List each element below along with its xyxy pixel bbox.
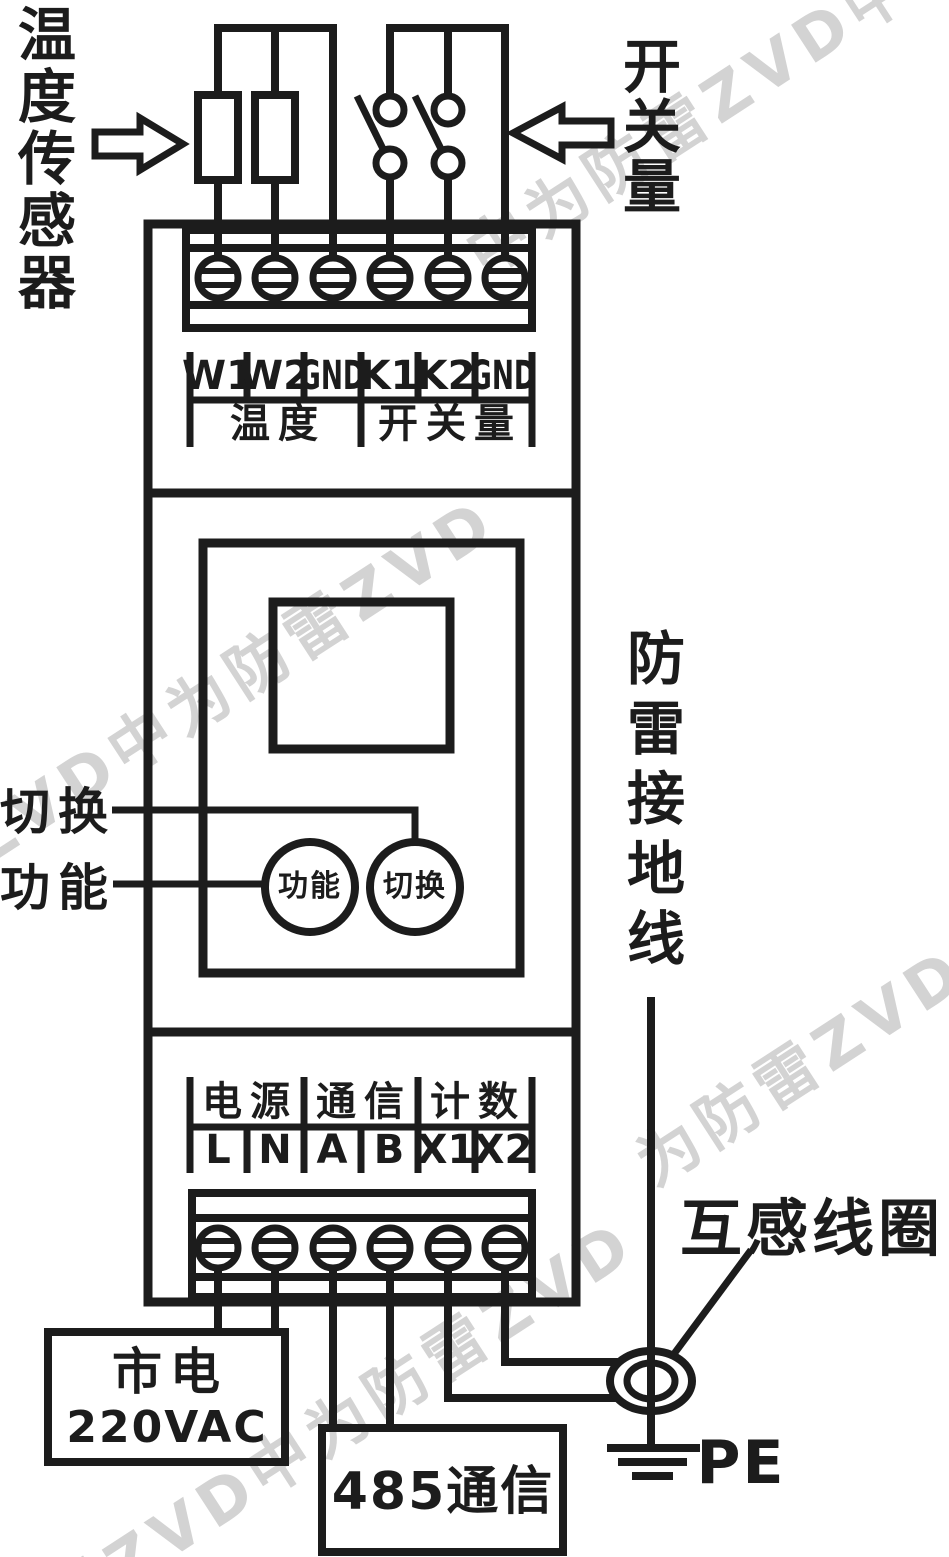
group-label-temperature: 温度	[230, 404, 326, 444]
earth-ground-icon	[607, 1448, 700, 1476]
screw-terminal	[255, 258, 295, 298]
arrow-right-icon	[95, 118, 183, 170]
screw-terminal	[255, 1228, 295, 1268]
screw-terminal	[485, 258, 525, 298]
mutual-coil-label: 互感线圈	[680, 1198, 944, 1260]
group-label-power: 电源	[202, 1082, 298, 1122]
terminal-label-k2: K2	[417, 356, 476, 396]
spd-ground-wire-label: 防雷接地线	[622, 628, 680, 978]
group-label-count: 计数	[430, 1082, 526, 1122]
screw-terminal	[428, 1228, 468, 1268]
terminal-label-l: L	[205, 1130, 231, 1170]
switch-contact-symbol	[415, 96, 462, 177]
ref-label-function: 功能	[0, 863, 116, 913]
top-screw-terminals	[198, 258, 525, 298]
front-panel	[112, 543, 520, 973]
arrow-left-icon	[513, 107, 611, 159]
screw-terminal	[370, 1228, 410, 1268]
screw-terminal	[313, 258, 353, 298]
terminal-label-k1: K1	[360, 356, 419, 396]
terminal-label-n: N	[258, 1130, 291, 1170]
switch-contact-symbol	[357, 96, 404, 177]
switch-ref-line	[112, 810, 415, 842]
terminal-label-b: B	[374, 1130, 405, 1170]
bottom-terminal-block	[192, 1193, 532, 1297]
group-label-comm: 通信	[316, 1082, 412, 1122]
ref-label-switch: 切换	[0, 787, 116, 837]
wiring-diagram: 中为防雷ZVD中为 ZVD中为防雷ZVD 为防雷ZVD中为 雷ZVD中为防雷ZV…	[0, 0, 949, 1557]
terminal-label-x2: X2	[474, 1130, 533, 1170]
temp-sensor-symbol	[198, 95, 238, 180]
switch-input-label: 开关量	[618, 36, 676, 216]
screw-terminal	[428, 258, 468, 298]
screw-terminal	[485, 1228, 525, 1268]
temp-sensor-symbol	[255, 95, 295, 180]
terminal-label-a: A	[317, 1130, 348, 1170]
group-label-switch: 开关量	[378, 404, 522, 444]
diagram-lines	[0, 0, 949, 1557]
temp-sensor-label: 温度传感器	[13, 4, 71, 314]
switch-button-label: 切换	[383, 872, 447, 902]
pe-label: PE	[697, 1433, 786, 1493]
screw-terminal	[370, 258, 410, 298]
mains-label-line1: 市电	[112, 1347, 228, 1397]
coil-callout-line	[668, 1250, 751, 1362]
terminal-label-x1: X1	[417, 1130, 476, 1170]
terminal-label-gnd: GND	[299, 356, 365, 396]
screw-terminal	[198, 258, 238, 298]
screw-terminal	[198, 1228, 238, 1268]
screw-terminal	[313, 1228, 353, 1268]
terminal-label-gnd: GND	[470, 356, 536, 396]
function-button-label: 功能	[278, 872, 342, 902]
mains-label-line2: 220VAC	[66, 1406, 267, 1450]
rs485-label: 485通信	[332, 1466, 555, 1518]
display-screen	[273, 602, 450, 749]
bottom-screw-terminals	[198, 1228, 525, 1268]
